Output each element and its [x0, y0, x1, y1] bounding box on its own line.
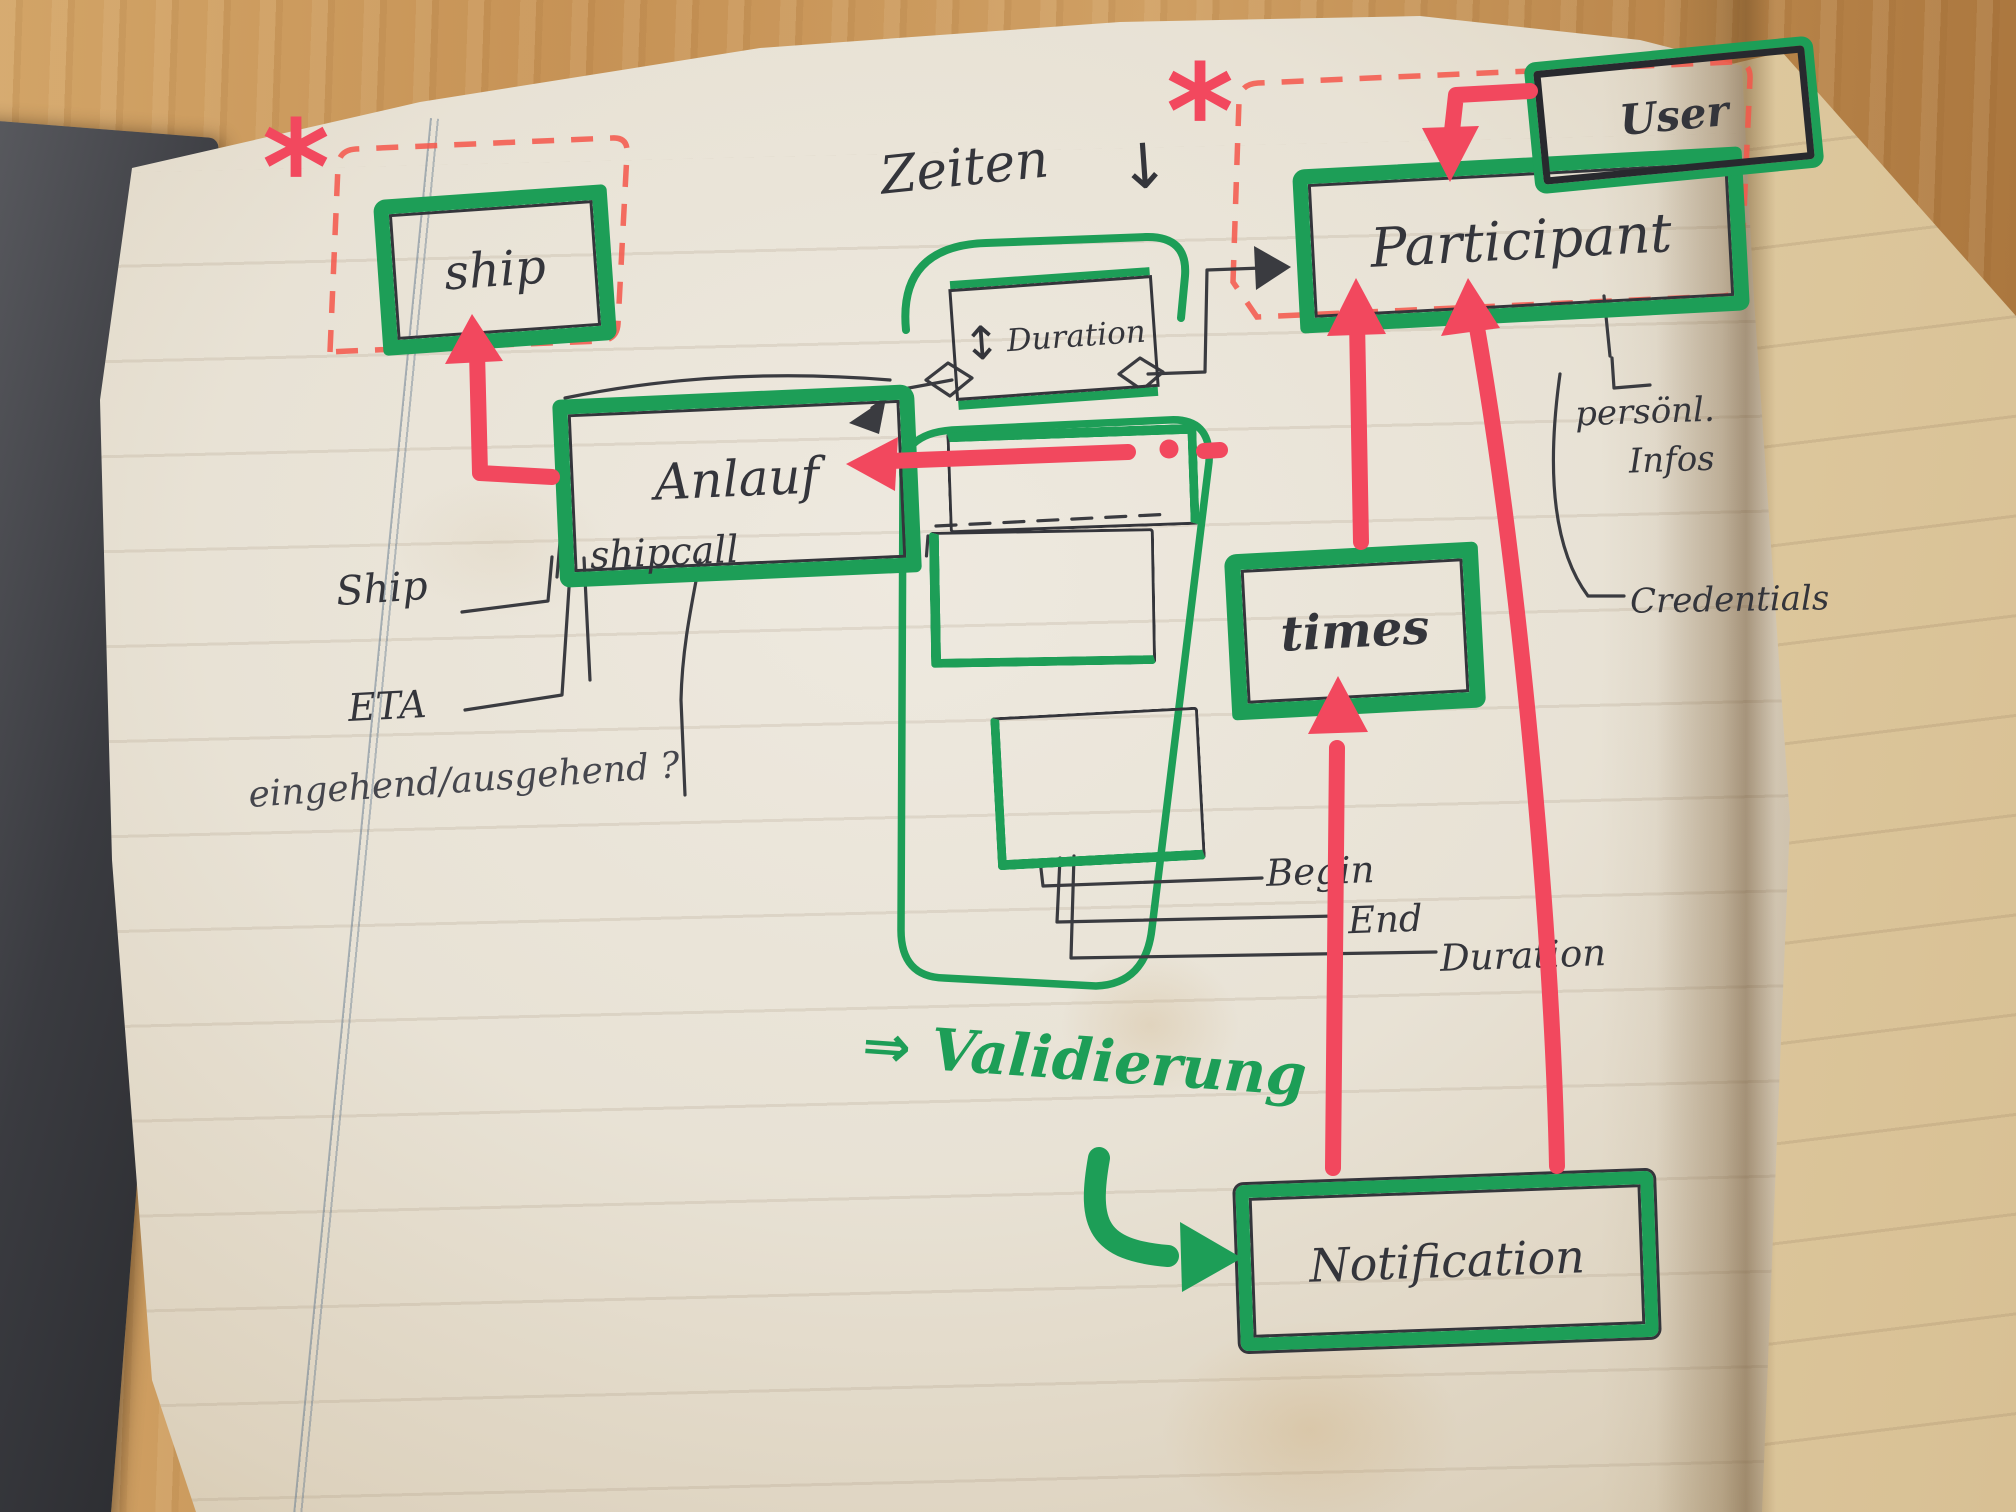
entity-anlauf-label: Anlauf	[653, 446, 820, 511]
entity-notification-label: Notification	[1308, 1229, 1585, 1293]
personal-infos-attribute: persönl. Infos	[1574, 386, 1717, 489]
credentials-attribute: Credentials	[1630, 578, 1830, 621]
entity-anlauf-sublabel: shipcall	[589, 527, 739, 577]
ship-attribute: Ship	[335, 563, 430, 615]
entity-anlauf-box: Anlauf shipcall	[552, 384, 922, 588]
updown-arrow-icon: ↕	[960, 315, 1002, 372]
zeiten-item-box-2	[929, 528, 1156, 668]
zeiten-item-box-1	[946, 424, 1199, 534]
entity-times-box: times	[1224, 541, 1486, 720]
asterisk-left: *	[262, 128, 330, 209]
down-arrow-icon: ↓	[1116, 128, 1173, 204]
begin-attribute: Begin	[1265, 848, 1375, 895]
entity-times-label: times	[1279, 599, 1430, 663]
entity-participant-label: Participant	[1369, 201, 1674, 280]
entity-duration-label: Duration	[1006, 314, 1147, 360]
entity-participant-box: Participant	[1292, 146, 1750, 333]
zeiten-item-box-3	[990, 707, 1206, 871]
entity-notification-box: Notification	[1235, 1171, 1659, 1351]
personal-infos-line1: persönl.	[1574, 390, 1715, 435]
entity-ship-label: ship	[442, 239, 547, 302]
entity-ship-box: ship	[373, 184, 617, 356]
entity-user-label: User	[1617, 85, 1730, 144]
implies-arrow-icon: ⇒	[860, 1011, 913, 1082]
asterisk-right: *	[1166, 72, 1234, 153]
personal-infos-line2: Infos	[1628, 439, 1715, 482]
end-attribute: End	[1347, 897, 1423, 943]
entity-duration-box: ↕ Duration	[948, 275, 1159, 401]
desk-photo: ship Anlauf shipcall ↕ Duration Particip…	[0, 0, 2016, 1512]
eta-attribute: ETA	[347, 682, 428, 730]
duration-attribute: Duration	[1439, 931, 1606, 980]
